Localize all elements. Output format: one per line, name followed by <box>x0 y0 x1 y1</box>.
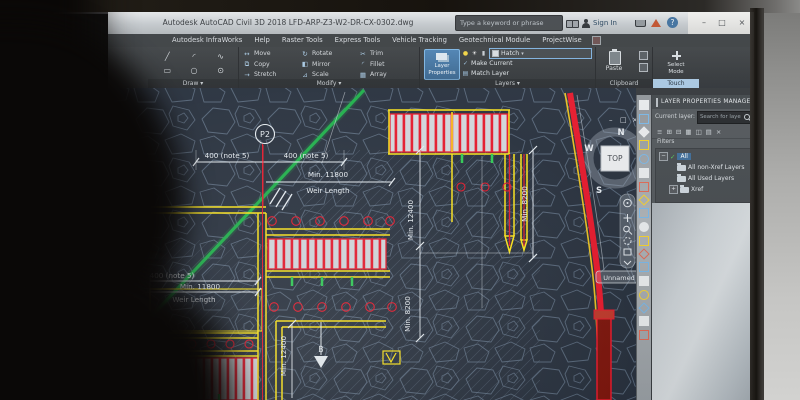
layer-thaw-icon[interactable]: ☀ <box>471 50 478 57</box>
panel-layers: Layer Properties ● ☀ ▮ Hatch ▾ <box>420 47 596 88</box>
filters-label: Filters <box>657 139 674 145</box>
modify-col-1: ↔ Move ⧉ Copy → Stretch <box>243 49 301 79</box>
p2-label: P2 <box>260 130 270 139</box>
app-store-icon[interactable] <box>651 19 661 27</box>
paste-label: Paste <box>602 65 626 72</box>
tree-used-layers-label: All Used Layers <box>688 175 734 182</box>
toolbar-icon[interactable] <box>639 222 649 232</box>
navigation-bar[interactable] <box>620 194 635 268</box>
copy-clip-icon[interactable] <box>639 63 648 72</box>
rotate-icon: ↻ <box>301 50 309 58</box>
current-layer-row: Current layer: <box>652 109 754 125</box>
ribbon-tab-bar: Autodesk InfraWorks Help Raster Tools Ex… <box>108 34 754 47</box>
window-title: Autodesk AutoCAD Civil 3D 2018 LFD-ARP-Z… <box>138 12 438 34</box>
view-name-text: Unnamed <box>603 274 634 282</box>
circle-tool-icon[interactable]: ○ <box>191 66 198 75</box>
toolbar-icon[interactable] <box>639 154 649 164</box>
fillet-button[interactable]: ◜ Fillet <box>359 60 417 69</box>
panel-label-touch: Touch <box>653 79 699 88</box>
min-12400-lower: Min. 12400 <box>279 335 288 376</box>
set-current-icon[interactable]: ▤ <box>706 128 712 136</box>
ellipse-tool-icon[interactable]: ⊙ <box>217 66 224 75</box>
collapse-icon[interactable]: − <box>659 152 668 161</box>
tree-xref-label: Xref <box>691 186 703 193</box>
close-button[interactable]: × <box>734 12 750 34</box>
array-label: Array <box>370 71 387 78</box>
move-label: Move <box>254 50 271 57</box>
search-binoculars-icon[interactable] <box>566 20 578 27</box>
tree-item-used-layers[interactable]: All Used Layers <box>656 173 750 184</box>
toolbar-icon[interactable] <box>638 126 649 137</box>
tree-item-xref[interactable]: + Xref <box>656 184 750 195</box>
viewcube-north[interactable]: N <box>617 128 624 138</box>
folder-icon <box>677 176 686 182</box>
rotate-button[interactable]: ↻ Rotate <box>301 49 359 58</box>
hatch-layer-label: Hatch <box>501 50 519 57</box>
tree-item-non-xref[interactable]: All non-Xref Layers <box>656 162 750 173</box>
arc-tool-icon[interactable]: ◜ <box>192 52 195 61</box>
fillet-label: Fillet <box>370 61 385 68</box>
help-icon[interactable]: ? <box>667 17 678 28</box>
scale-icon: ⊿ <box>301 71 309 79</box>
layer-color-swatch <box>492 50 499 57</box>
toolbar-icon[interactable] <box>638 302 649 313</box>
viewcube-top-face[interactable]: TOP <box>606 154 622 163</box>
tab-infraworks[interactable]: Autodesk InfraWorks <box>166 34 248 47</box>
modify-col-3: ✂ Trim ◜ Fillet ▦ Array <box>359 49 417 79</box>
copy-button[interactable]: ⧉ Copy <box>243 60 301 69</box>
infocenter-search[interactable] <box>455 15 563 31</box>
fillet-icon: ◜ <box>359 60 367 68</box>
dim-400-left: 400 (note 5) <box>205 151 250 160</box>
panel-clipboard: Paste Clipboard <box>596 47 653 88</box>
viewcube-west[interactable]: W <box>584 144 594 154</box>
expand-icon[interactable]: + <box>669 185 678 194</box>
modify-col-2: ↻ Rotate ◧ Mirror ⊿ Scale <box>301 49 359 79</box>
filter-tree: − ✓ All All non-Xref Layers All Used Lay… <box>655 148 751 203</box>
section-b-label: B <box>318 345 323 354</box>
toolbar-icon[interactable] <box>639 290 649 300</box>
side-toolbar <box>636 95 651 400</box>
paste-button[interactable]: Paste <box>602 49 626 78</box>
layer-properties-label: Layer Properties <box>425 63 459 77</box>
stretch-label: Stretch <box>254 71 276 78</box>
mirror-label: Mirror <box>312 61 330 68</box>
move-icon: ↔ <box>243 50 251 58</box>
tree-all-label: All <box>677 153 690 160</box>
scale-label: Scale <box>312 71 329 78</box>
cut-icon[interactable] <box>639 51 648 60</box>
mirror-button[interactable]: ◧ Mirror <box>301 60 359 69</box>
panel-label-modify[interactable]: Modify ▾ <box>239 79 419 88</box>
trim-button[interactable]: ✂ Trim <box>359 49 417 58</box>
rotate-label: Rotate <box>312 50 332 57</box>
panel-label-clipboard: Clipboard <box>596 79 652 88</box>
sign-in-button[interactable]: Sign In <box>593 12 617 34</box>
tree-item-all[interactable]: − ✓ All <box>656 151 750 162</box>
titlebar: Autodesk AutoCAD Civil 3D 2018 LFD-ARP-Z… <box>108 12 754 34</box>
toolbar-icon[interactable] <box>639 114 649 124</box>
copy-label: Copy <box>254 61 270 68</box>
layers-row-2: ✓ Make Current <box>462 59 592 68</box>
panel-label-layers[interactable]: Layers ▾ <box>420 79 595 88</box>
line-tool-icon[interactable]: ╱ <box>165 52 170 61</box>
photo-scene: Autodesk AutoCAD Civil 3D 2018 LFD-ARP-Z… <box>0 0 800 400</box>
modify-tools: ↔ Move ⧉ Copy → Stretch ↻ Rotate <box>243 49 417 79</box>
layer-properties-button[interactable]: Layer Properties <box>424 49 460 80</box>
palette-icon <box>656 98 658 107</box>
new-layer-icon[interactable]: ▦ <box>685 128 691 136</box>
move-button[interactable]: ↔ Move <box>243 49 301 58</box>
make-current-icon: ✓ <box>462 60 469 67</box>
restore-button[interactable]: □ <box>714 12 730 34</box>
scale-button[interactable]: ⊿ Scale <box>301 70 359 79</box>
toolbar-icon[interactable] <box>638 248 649 259</box>
minimize-button[interactable]: – <box>696 12 712 34</box>
select-mode-button[interactable]: Select Mode <box>665 49 687 78</box>
min-12400-mid: Min. 12400 <box>406 199 415 240</box>
viewport-restore-icon[interactable]: □ <box>620 116 627 124</box>
viewport-minimize-icon[interactable]: – <box>609 116 613 124</box>
layers-tools: ● ☀ ▮ Hatch ▾ ✓ Make Current <box>462 49 592 78</box>
stretch-button[interactable]: → Stretch <box>243 70 301 79</box>
layer-states-icon[interactable]: ⊟ <box>676 128 681 136</box>
tab-geotechnical-module[interactable]: Geotechnical Module <box>453 34 536 47</box>
ribbon-options-icon[interactable] <box>592 36 601 45</box>
rectangle-tool-icon[interactable]: ▭ <box>164 66 172 75</box>
crosshair-icon <box>672 51 681 60</box>
store-cart-icon[interactable] <box>635 20 646 27</box>
layers-stack-icon <box>436 53 447 60</box>
layers-row-3: ▤ Match Layer <box>462 69 592 78</box>
tree-non-xref-label: All non-Xref Layers <box>688 164 745 171</box>
toolbar-icon[interactable] <box>639 316 649 326</box>
panel-modify: ↔ Move ⧉ Copy → Stretch ↻ Rotate <box>239 47 420 88</box>
copy-icon: ⧉ <box>243 60 251 69</box>
ribbon: ╱ ◜ ∿ ▭ ○ ⊙ Draw ▾ ↔ Move ⧉ <box>108 47 754 88</box>
trim-label: Trim <box>370 50 383 57</box>
viewcube-south[interactable]: S <box>596 186 602 196</box>
stretch-icon: → <box>243 71 251 79</box>
array-button[interactable]: ▦ Array <box>359 70 417 79</box>
sign-in-person-icon[interactable] <box>582 19 590 28</box>
monitor-bezel-right <box>750 8 764 400</box>
draw-tools: ╱ ◜ ∿ ▭ ○ ⊙ <box>154 49 234 77</box>
palette-titlebar[interactable]: LAYER PROPERTIES MANAGER <box>652 95 754 109</box>
toolbar-icon[interactable] <box>639 236 649 246</box>
tab-express-tools[interactable]: Express Tools <box>329 34 386 47</box>
palette-toolbar: ≡ ⊞ ⊟ ▦ ◫ ▤ × <box>652 125 754 139</box>
toolbar-icon[interactable] <box>639 140 649 150</box>
panel-draw: ╱ ◜ ∿ ▭ ○ ⊙ Draw ▾ <box>148 47 239 88</box>
toolbar-icon[interactable] <box>639 168 649 178</box>
weir-length-top: Weir Length <box>306 186 349 195</box>
layer-dropdown[interactable]: Hatch ▾ <box>489 48 592 59</box>
min-11800-lower: Min. 11800 <box>180 282 221 291</box>
view-name-label[interactable]: Unnamed <box>596 271 636 283</box>
search-icon <box>743 113 750 121</box>
toolbar-icon[interactable] <box>639 262 649 272</box>
layer-search-input[interactable] <box>698 114 743 120</box>
panel-label-draw[interactable]: Draw ▾ <box>148 79 238 88</box>
array-icon: ▦ <box>359 71 367 79</box>
mirror-icon: ◧ <box>301 60 309 68</box>
match-layer-icon: ▤ <box>462 70 469 77</box>
make-current-button[interactable]: Make Current <box>471 60 513 67</box>
min-8200-right: Min. 8200 <box>520 186 529 222</box>
layer-list-area[interactable] <box>652 203 754 400</box>
infocenter-search-input[interactable] <box>456 19 562 27</box>
polyline-tool-icon[interactable]: ∿ <box>217 52 224 61</box>
min-11800-top: Min. 11800 <box>308 170 349 179</box>
new-group-filter-icon[interactable]: ⊞ <box>666 128 671 136</box>
clipboard-icon <box>609 51 621 65</box>
dim-400-right: 400 (note 5) <box>284 151 329 160</box>
toolbar-icon[interactable] <box>639 208 649 218</box>
new-filter-icon[interactable]: ≡ <box>657 128 662 136</box>
check-icon: ✓ <box>670 153 675 161</box>
layers-row-1: ● ☀ ▮ Hatch ▾ <box>462 49 592 58</box>
layer-on-icon[interactable]: ● <box>462 50 469 57</box>
match-layer-button[interactable]: Match Layer <box>471 70 509 77</box>
clipboard-minibuttons <box>639 51 648 72</box>
chevron-down-icon: ▾ <box>521 51 524 57</box>
current-layer-label: Current layer: <box>655 114 695 120</box>
toolbar-icon[interactable] <box>639 182 649 192</box>
min-8200-mid: Min. 8200 <box>403 296 412 332</box>
toolbar-icon[interactable] <box>639 276 649 286</box>
folder-icon <box>680 187 689 193</box>
toolbar-icon[interactable] <box>639 330 649 340</box>
select-mode-label: Select Mode <box>665 62 687 76</box>
panel-touch: Select Mode Touch <box>653 47 699 88</box>
layer-properties-manager: LAYER PROPERTIES MANAGER Current layer: … <box>651 95 754 400</box>
tab-projectwise[interactable]: ProjectWise <box>536 34 587 47</box>
layer-lock-icon[interactable]: ▮ <box>480 50 487 57</box>
tab-raster-tools[interactable]: Raster Tools <box>276 34 329 47</box>
tab-help[interactable]: Help <box>248 34 276 47</box>
toolbar-icon[interactable] <box>638 194 649 205</box>
tab-vehicle-tracking[interactable]: Vehicle Tracking <box>386 34 453 47</box>
folder-icon <box>677 165 686 171</box>
palette-title: LAYER PROPERTIES MANAGER <box>661 99 754 105</box>
trim-icon: ✂ <box>359 50 367 58</box>
delete-layer-icon[interactable]: × <box>716 128 721 136</box>
new-layer-vp-icon[interactable]: ◫ <box>696 128 702 136</box>
toolbar-icon[interactable] <box>639 100 649 110</box>
layer-search-box[interactable] <box>697 111 751 124</box>
